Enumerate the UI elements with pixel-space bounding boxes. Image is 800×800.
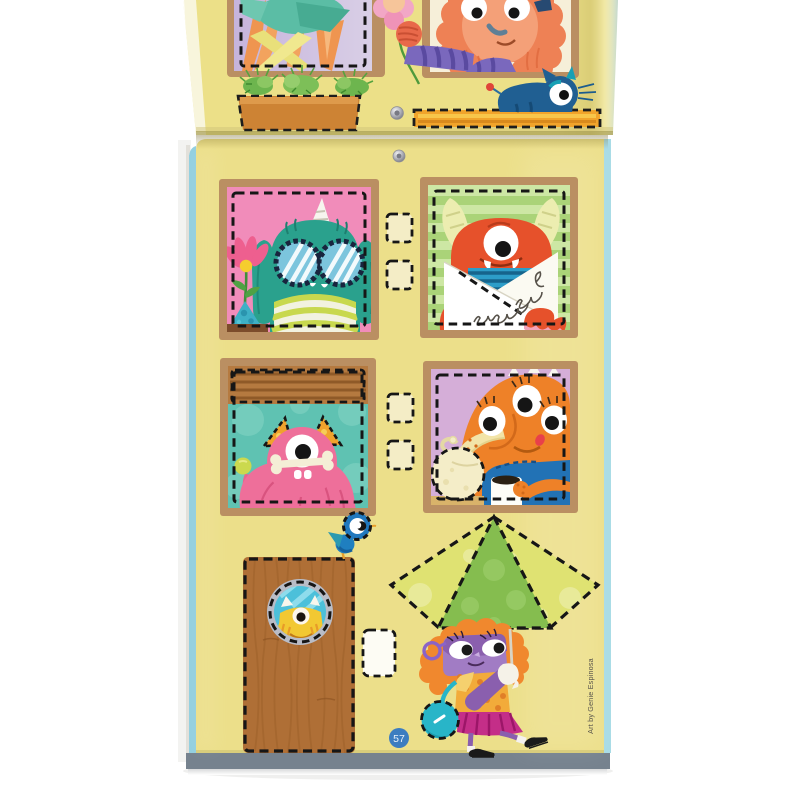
svg-text:Art by Genie Espinosa: Art by Genie Espinosa xyxy=(586,658,595,734)
svg-text:57: 57 xyxy=(393,733,405,745)
